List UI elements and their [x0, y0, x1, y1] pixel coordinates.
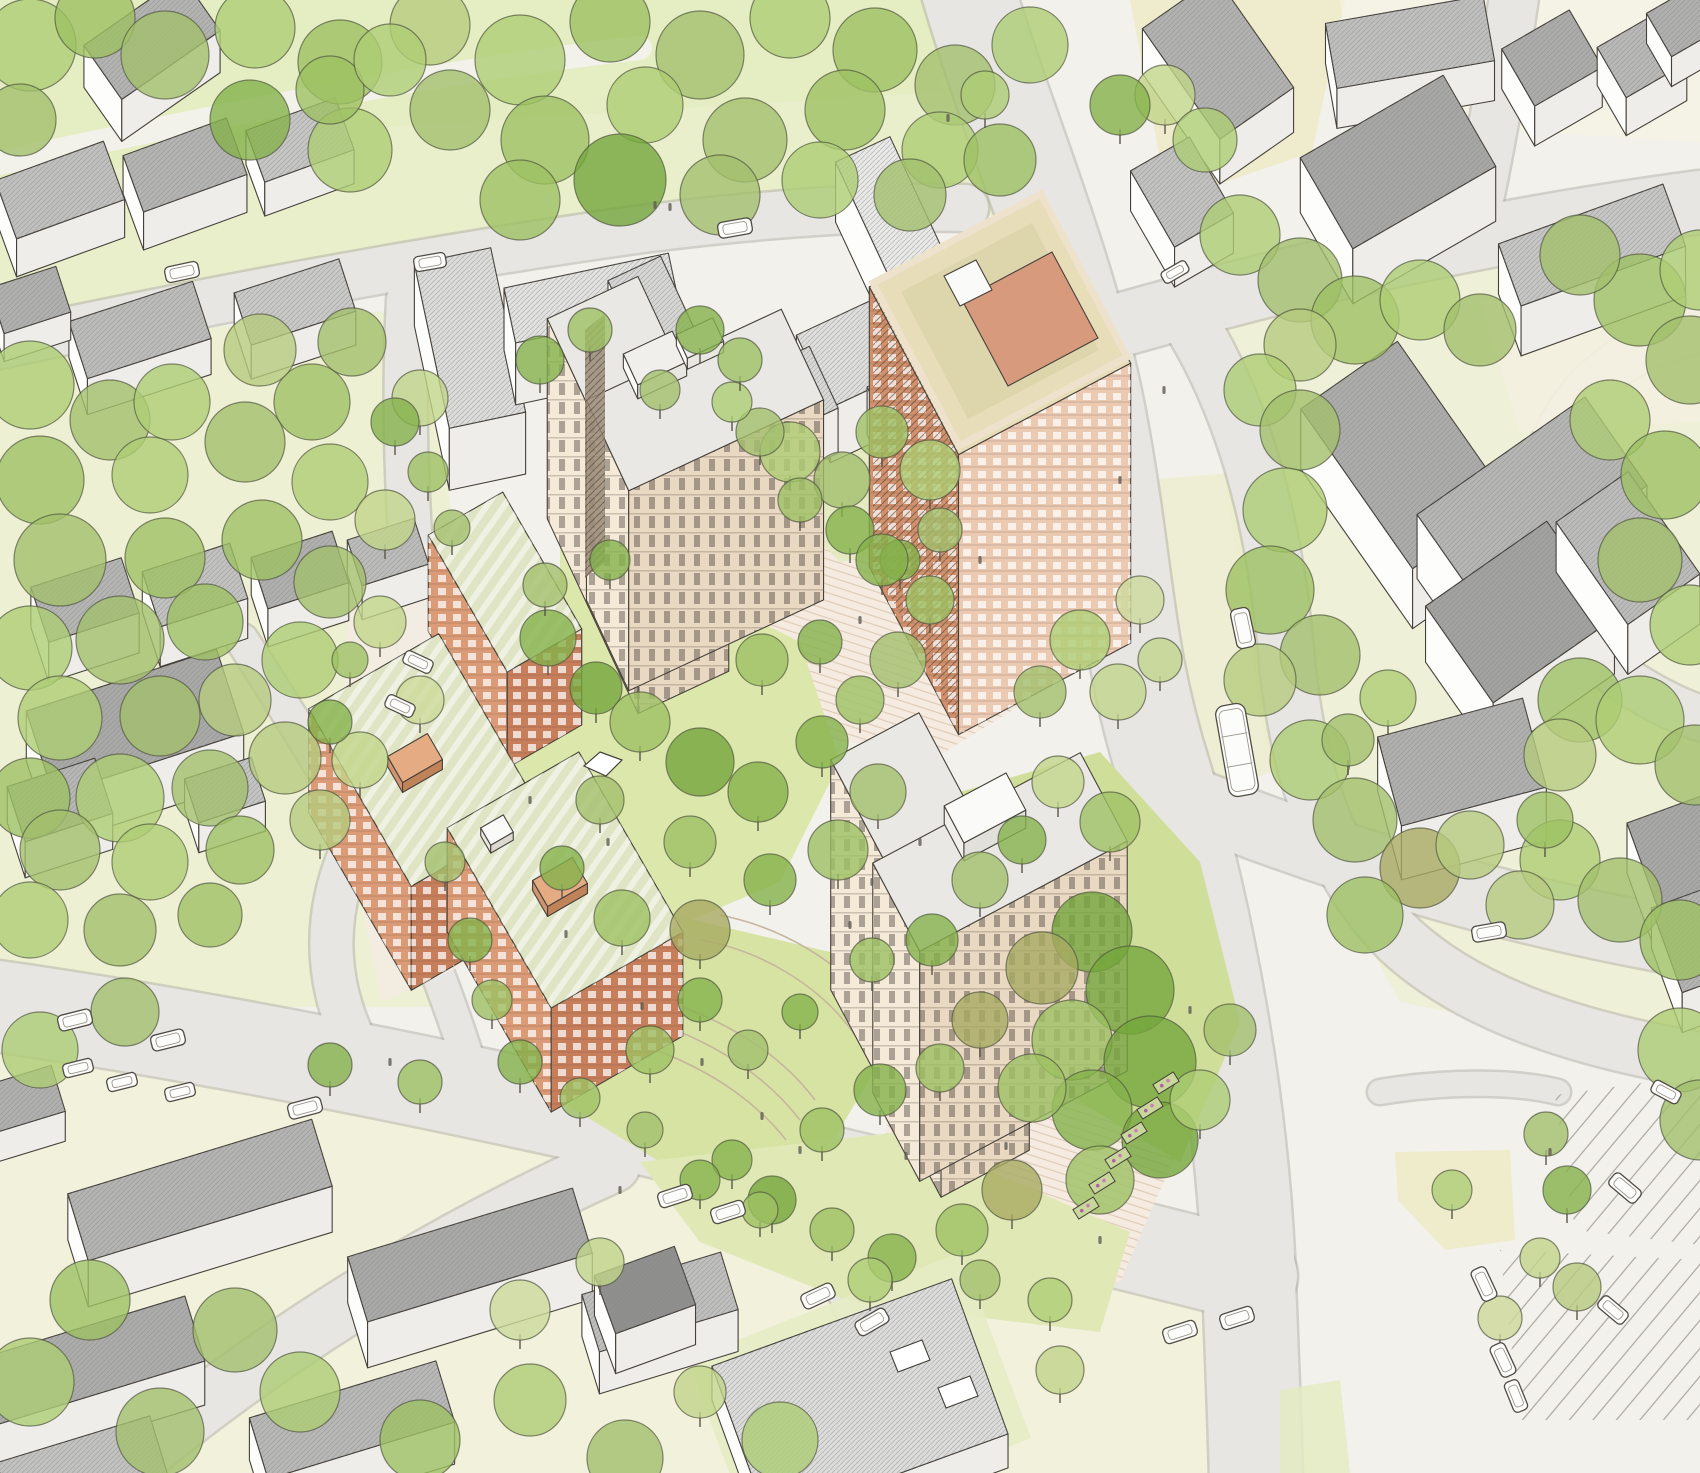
- tree: [670, 900, 730, 960]
- tree: [1138, 638, 1182, 682]
- person: [946, 114, 949, 122]
- tree: [836, 676, 884, 724]
- tree: [1006, 932, 1078, 1004]
- tree: [296, 56, 364, 124]
- tree: [210, 80, 290, 160]
- tree: [167, 584, 243, 660]
- tree: [1524, 1112, 1568, 1156]
- tree: [112, 824, 188, 900]
- tree: [410, 70, 490, 150]
- tree: [290, 790, 350, 850]
- tree: [0, 436, 84, 524]
- person: [904, 1152, 907, 1160]
- tree: [874, 159, 946, 231]
- tree: [728, 762, 788, 822]
- tree: [640, 370, 680, 410]
- tree: [516, 336, 564, 384]
- person: [798, 1146, 801, 1154]
- tree: [1028, 1278, 1072, 1322]
- tree: [1436, 811, 1504, 879]
- tree: [1524, 719, 1596, 791]
- tree: [224, 314, 296, 386]
- tree: [906, 914, 958, 966]
- tree: [76, 596, 164, 684]
- tree: [292, 444, 368, 520]
- tree: [906, 576, 954, 624]
- tree: [308, 1043, 352, 1087]
- tree: [744, 854, 796, 906]
- tree: [1090, 664, 1146, 720]
- tree: [610, 692, 670, 752]
- tree: [998, 816, 1046, 864]
- tree: [666, 728, 734, 796]
- tree: [964, 124, 1036, 196]
- tree: [810, 1208, 854, 1252]
- tree: [199, 664, 271, 736]
- tree: [627, 1112, 663, 1148]
- tree: [172, 750, 248, 826]
- tree: [1032, 756, 1084, 808]
- tree: [568, 308, 612, 352]
- tree: [520, 610, 576, 666]
- tree: [800, 1108, 844, 1152]
- tree: [576, 776, 624, 824]
- tree: [206, 816, 274, 884]
- tree: [742, 1192, 778, 1228]
- tree: [498, 1040, 542, 1084]
- tree: [992, 7, 1068, 83]
- tree: [91, 978, 159, 1046]
- tree: [14, 514, 106, 606]
- tree: [850, 764, 906, 820]
- tree: [1014, 666, 1066, 718]
- tree: [50, 1260, 130, 1340]
- tree: [354, 24, 426, 96]
- tree: [523, 563, 567, 607]
- tree: [796, 716, 848, 768]
- tree: [952, 992, 1008, 1048]
- tree: [1327, 877, 1403, 953]
- tree: [134, 364, 210, 440]
- person: [918, 838, 921, 846]
- tree: [870, 632, 926, 688]
- person: [1004, 1142, 1007, 1150]
- tree: [1543, 1166, 1591, 1214]
- person: [640, 1002, 643, 1010]
- person: [1098, 1236, 1101, 1244]
- tree: [18, 676, 102, 760]
- tree: [398, 1060, 442, 1104]
- person: [668, 203, 671, 211]
- tree: [20, 810, 100, 890]
- person: [1118, 476, 1121, 484]
- carpark-hook-road: [1380, 1084, 1558, 1092]
- tree: [1243, 468, 1327, 552]
- person: [700, 1058, 703, 1066]
- tree: [960, 1260, 1000, 1300]
- tree: [736, 634, 788, 686]
- tree: [798, 620, 842, 664]
- corner-verge: [1280, 1380, 1350, 1473]
- tree: [782, 142, 858, 218]
- person: [870, 878, 873, 886]
- tree: [332, 642, 368, 678]
- tree: [354, 596, 406, 648]
- tree: [982, 1160, 1042, 1220]
- tree: [674, 1366, 726, 1418]
- tower-shade-face-hatch: [585, 314, 605, 578]
- tree: [262, 622, 338, 698]
- tree: [308, 700, 352, 744]
- tree: [1170, 1070, 1230, 1130]
- tree: [1260, 390, 1340, 470]
- tree: [1204, 1004, 1256, 1056]
- tree: [848, 1258, 892, 1302]
- tree: [494, 1364, 566, 1436]
- tree: [1553, 1263, 1601, 1311]
- person: [1548, 1148, 1551, 1156]
- tree: [854, 1064, 906, 1116]
- tree: [84, 894, 156, 966]
- tree: [193, 1288, 277, 1372]
- tree: [294, 546, 366, 618]
- tree: [472, 980, 512, 1020]
- tree: [1173, 108, 1237, 172]
- tree: [1478, 1296, 1522, 1340]
- tree: [120, 676, 200, 756]
- tree: [808, 820, 868, 880]
- person: [1162, 386, 1165, 394]
- tree: [936, 1204, 988, 1256]
- tree: [607, 67, 683, 143]
- tree: [718, 338, 762, 382]
- tree: [574, 134, 666, 226]
- tree: [260, 1352, 340, 1432]
- person: [760, 1112, 763, 1120]
- masterplan-illustration: [0, 0, 1700, 1473]
- person: [653, 201, 656, 209]
- tree: [1598, 518, 1682, 602]
- tree: [425, 842, 465, 882]
- tree: [626, 1026, 674, 1074]
- tree: [112, 437, 188, 513]
- person: [528, 796, 531, 804]
- tree: [1360, 670, 1416, 726]
- person: [978, 556, 981, 564]
- tree: [1116, 576, 1164, 624]
- person: [388, 1058, 391, 1066]
- tree: [380, 1400, 460, 1473]
- tree: [408, 452, 448, 492]
- tree: [742, 1402, 818, 1473]
- tree: [1050, 610, 1110, 670]
- tree: [952, 852, 1008, 908]
- tree: [448, 918, 492, 962]
- tree: [664, 816, 716, 868]
- tree: [594, 890, 650, 946]
- tree: [1090, 75, 1150, 135]
- tree: [961, 71, 1009, 119]
- tree: [576, 1238, 624, 1286]
- tree: [856, 534, 908, 586]
- tree: [1432, 1170, 1472, 1210]
- person: [618, 1186, 621, 1194]
- tree: [850, 938, 894, 982]
- tree: [916, 1044, 964, 1092]
- tree: [918, 508, 962, 552]
- person: [606, 838, 609, 846]
- tree: [782, 994, 818, 1030]
- tree: [728, 1030, 768, 1070]
- tree: [178, 883, 242, 947]
- tree: [434, 510, 470, 546]
- masterplan-canvas: [0, 0, 1700, 1473]
- tree: [116, 1388, 204, 1473]
- tree: [712, 382, 752, 422]
- tree: [678, 978, 722, 1022]
- tree: [1540, 215, 1620, 295]
- tree: [1322, 714, 1374, 766]
- person: [848, 921, 851, 929]
- tree: [475, 15, 565, 105]
- person: [858, 616, 861, 624]
- person: [564, 930, 567, 938]
- tree: [121, 11, 209, 99]
- tree: [778, 478, 822, 522]
- tree: [856, 406, 908, 458]
- tree: [540, 846, 584, 890]
- tree: [355, 490, 415, 550]
- tree: [900, 440, 960, 500]
- tree: [1036, 1346, 1084, 1394]
- tree: [0, 882, 68, 958]
- tree: [805, 70, 885, 150]
- tree: [205, 402, 285, 482]
- tree: [1444, 294, 1516, 366]
- tree: [676, 306, 724, 354]
- tree: [1621, 431, 1700, 519]
- person: [1188, 1006, 1191, 1014]
- tree: [480, 160, 560, 240]
- tree: [1517, 792, 1573, 848]
- tree: [222, 500, 302, 580]
- tree: [490, 1280, 550, 1340]
- tree: [1080, 792, 1140, 852]
- tree: [590, 540, 630, 580]
- tree: [318, 308, 386, 376]
- tree: [998, 1054, 1066, 1122]
- tree: [371, 398, 419, 446]
- tree: [1520, 1238, 1560, 1278]
- tree: [560, 1078, 600, 1118]
